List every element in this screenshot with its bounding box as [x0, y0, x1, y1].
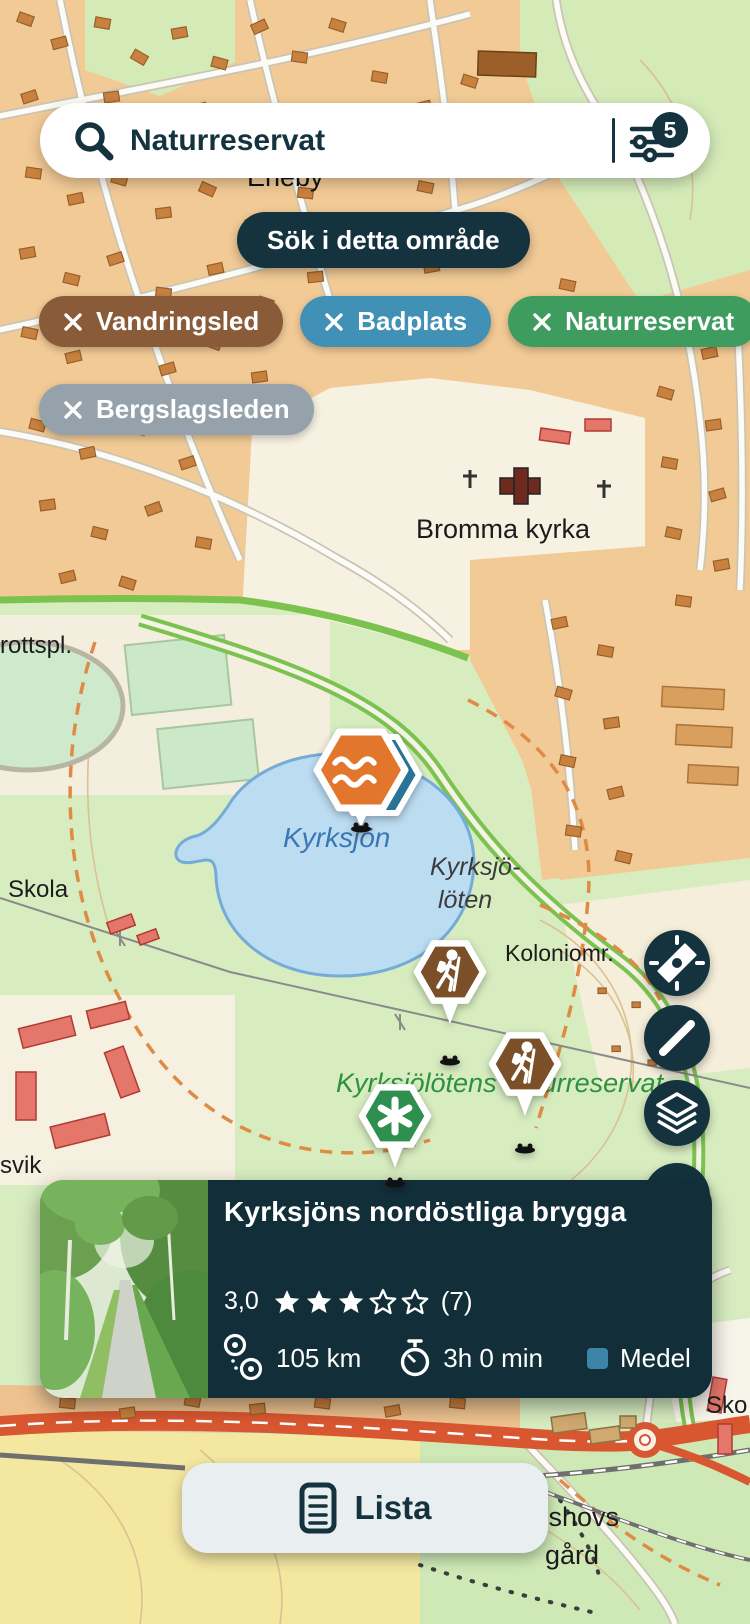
list-view-button[interactable]: Lista — [182, 1463, 548, 1553]
ruler-icon — [644, 1005, 710, 1071]
map-label-bromma-kyrka: Bromma kyrka — [416, 514, 590, 545]
filter-chip-row-2: Bergslagsleden — [39, 384, 314, 435]
duration-icon — [397, 1337, 433, 1379]
route-pins-icon — [222, 1332, 266, 1384]
rating-count: (7) — [441, 1286, 473, 1317]
map-label-koloniomrade: Koloniomr. — [505, 940, 614, 967]
difficulty-label: Medel — [620, 1343, 691, 1374]
map-screen: Eneby rottspl. Bromma kyrka Kyrksjön Kyr… — [0, 0, 750, 1624]
list-icon — [298, 1482, 338, 1534]
compass-button[interactable] — [644, 930, 710, 996]
rating-row: 3,0 (7) — [224, 1286, 473, 1317]
marker-naturreservat[interactable] — [352, 1076, 438, 1197]
list-button-label: Lista — [354, 1489, 431, 1527]
map-label-svik: svik — [0, 1152, 41, 1180]
trail-title: Kyrksjöns nordöstliga brygga — [224, 1196, 704, 1228]
search-this-area-button[interactable]: Sök i detta område — [237, 212, 530, 268]
chip-vandringsled[interactable]: Vandringsled — [39, 296, 283, 347]
marker-vandringsled-hiker[interactable] — [482, 1024, 568, 1159]
map-label-kyrksjoloten-1: Kyrksjö- — [430, 853, 520, 882]
rating-stars — [273, 1288, 433, 1316]
chip-label: Naturreservat — [565, 306, 734, 337]
marker-vandringsled-hiker[interactable] — [407, 932, 493, 1071]
compass-icon — [644, 930, 710, 996]
filter-chip-row-1: Vandringsled Badplats Naturreservat — [39, 296, 750, 347]
map-label-skola: Skola — [8, 876, 68, 904]
map-label-idrottsplats: rottspl. — [0, 632, 72, 660]
measure-button[interactable] — [644, 1005, 710, 1071]
close-icon[interactable] — [63, 312, 83, 332]
chip-label: Bergslagsleden — [96, 394, 290, 425]
result-card[interactable]: Kyrksjöns nordöstliga brygga 3,0 (7) 105… — [40, 1180, 712, 1398]
search-bar[interactable]: Naturreservat 5 — [40, 103, 710, 178]
search-input[interactable]: Naturreservat — [130, 124, 325, 158]
layers-icon — [644, 1080, 710, 1146]
chip-label: Vandringsled — [96, 306, 259, 337]
rating-value: 3,0 — [224, 1287, 259, 1316]
map-label-akeshovs-2: gård — [545, 1540, 599, 1571]
map-label-sko: Sko — [706, 1392, 747, 1420]
duration-value: 3h 0 min — [443, 1343, 543, 1374]
chip-bergslagsleden[interactable]: Bergslagsleden — [39, 384, 314, 435]
chip-label: Badplats — [357, 306, 467, 337]
layers-button[interactable] — [644, 1080, 710, 1146]
difficulty-color-square — [587, 1348, 608, 1369]
search-divider — [612, 118, 615, 163]
marker-badplats-swimming[interactable] — [309, 723, 429, 844]
filter-count-badge: 5 — [652, 112, 688, 148]
trail-photo — [40, 1180, 208, 1398]
distance-value: 105 km — [276, 1343, 361, 1374]
search-icon — [72, 119, 116, 163]
chip-naturreservat[interactable]: Naturreservat — [508, 296, 750, 347]
map-label-kyrksjoloten-2: löten — [438, 886, 492, 915]
close-icon[interactable] — [324, 312, 344, 332]
close-icon[interactable] — [532, 312, 552, 332]
stats-row: 105 km 3h 0 min Medel — [222, 1332, 698, 1384]
chip-badplats[interactable]: Badplats — [300, 296, 491, 347]
close-icon[interactable] — [63, 400, 83, 420]
